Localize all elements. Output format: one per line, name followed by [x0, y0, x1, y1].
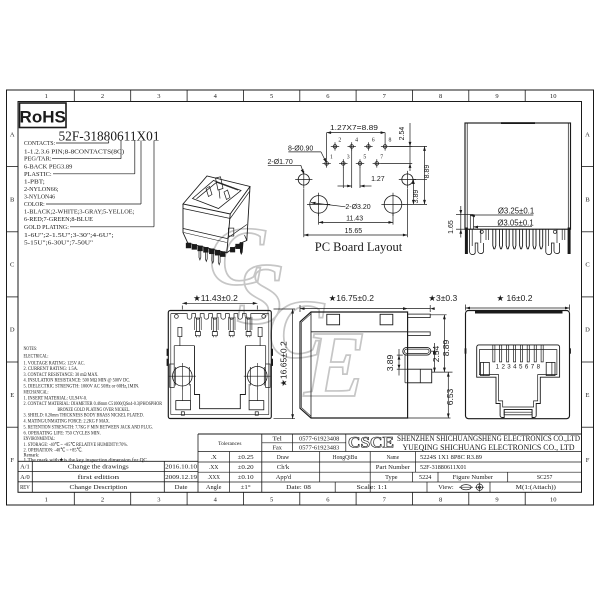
svg-text:.XXX: .XXX: [208, 475, 221, 481]
svg-text:E: E: [10, 392, 14, 399]
svg-text:1: 1: [45, 497, 48, 504]
svg-text:5: 5: [363, 154, 366, 160]
svg-text:±0.10: ±0.10: [238, 475, 254, 481]
svg-text:2.54: 2.54: [399, 127, 406, 141]
svg-text:YUEQING SHICHUANG ELECTRONICS: YUEQING SHICHUANG ELECTRONICS CO., LTD: [403, 443, 575, 452]
svg-text:2: 2: [338, 137, 341, 143]
svg-text:8.89: 8.89: [441, 339, 451, 356]
svg-text:NOTES:: NOTES:: [24, 346, 38, 352]
svg-text:B: B: [585, 196, 590, 203]
svg-text:1-BLACK;2-WHITE;3-GRAY;5-YELLO: 1-BLACK;2-WHITE;3-GRAY;5-YELLOE;: [24, 209, 135, 216]
svg-text:0577-61923483: 0577-61923483: [299, 445, 339, 451]
svg-text:5: 5: [270, 497, 273, 504]
svg-text:PLASTIC:: PLASTIC:: [24, 171, 52, 178]
svg-text:52F-31880611X01: 52F-31880611X01: [420, 465, 467, 471]
svg-text:±0.25: ±0.25: [238, 455, 254, 461]
svg-text:Ø3.05±0.1: Ø3.05±0.1: [497, 218, 533, 227]
svg-text:★11.43±0.2: ★11.43±0.2: [193, 293, 238, 303]
svg-text:4: 4: [355, 137, 358, 143]
svg-text:PEG/TAR:: PEG/TAR:: [24, 156, 52, 163]
svg-text:.X: .X: [211, 455, 218, 461]
svg-text:2009.12.19: 2009.12.19: [165, 475, 197, 481]
svg-text:CSCE: CSCE: [348, 435, 394, 452]
svg-text:5224S 1X1 8P8C R3.89: 5224S 1X1 8P8C R3.89: [420, 455, 482, 461]
svg-text:1 2 3 4 5 6 7 8: 1 2 3 4 5 6 7 8: [496, 363, 541, 370]
svg-text:A/0: A/0: [20, 475, 30, 481]
svg-text:RoHS: RoHS: [20, 108, 66, 127]
svg-text:7: 7: [380, 154, 383, 160]
svg-text:Draw: Draw: [277, 455, 290, 461]
svg-text:1.27: 1.27: [371, 176, 385, 183]
svg-text:HongQiBu: HongQiBu: [333, 455, 358, 461]
svg-text:10: 10: [550, 93, 557, 100]
svg-text:Change the drawings: Change the drawings: [68, 465, 130, 471]
svg-text:ELECTRICAL:: ELECTRICAL:: [24, 354, 49, 360]
svg-text:5224: 5224: [419, 475, 431, 481]
svg-text:F: F: [586, 457, 590, 464]
svg-text:6: 6: [372, 137, 375, 143]
svg-text:C: C: [585, 262, 589, 269]
svg-text:11.43: 11.43: [346, 215, 363, 222]
svg-text:D: D: [10, 327, 15, 334]
svg-text:C: C: [10, 262, 14, 269]
svg-text:1-6U";2-1.5U";3-30";4-6U";: 1-6U";2-1.5U";3-30";4-6U";: [24, 232, 114, 239]
svg-text:A: A: [585, 131, 590, 138]
svg-text:1: 1: [45, 93, 48, 100]
svg-text:0577-61923408: 0577-61923408: [299, 437, 339, 443]
svg-text:View:: View:: [438, 485, 454, 491]
svg-text:D: D: [585, 327, 590, 334]
svg-text:6-RED;7-GREEN;8-BLUE: 6-RED;7-GREEN;8-BLUE: [24, 216, 93, 223]
svg-text:9: 9: [495, 93, 498, 100]
svg-text:1-1.2.3.6 PIN;8-8CONTACTS(8C): 1-1.2.3.6 PIN;8-8CONTACTS(8C): [24, 148, 124, 155]
svg-text:Ø3.25±0.1: Ø3.25±0.1: [498, 206, 534, 215]
svg-text:F: F: [10, 457, 14, 464]
svg-text:±0.20: ±0.20: [238, 465, 254, 471]
svg-text:★16.65±0.2: ★16.65±0.2: [279, 341, 289, 387]
svg-text:1.27X7=8.89: 1.27X7=8.89: [330, 123, 378, 132]
svg-text:Figure Number: Figure Number: [453, 475, 493, 481]
svg-text:10: 10: [550, 497, 557, 504]
svg-text:3.89: 3.89: [385, 354, 395, 371]
svg-text:Angle: Angle: [206, 485, 222, 491]
svg-text:Change Description: Change Description: [70, 485, 128, 491]
svg-text:2: 2: [101, 497, 104, 504]
svg-text:first edition: first edition: [78, 474, 120, 481]
svg-text:★16.75±0.2: ★16.75±0.2: [329, 293, 375, 303]
svg-text:2-Ø1.70: 2-Ø1.70: [268, 159, 293, 166]
svg-text:Date: 08: Date: 08: [286, 485, 311, 491]
svg-text:M(1:(Attach)): M(1:(Attach)): [516, 484, 556, 491]
svg-text:B: B: [10, 196, 15, 203]
svg-text:8: 8: [389, 137, 392, 143]
svg-text:A: A: [10, 131, 15, 138]
svg-text:8: 8: [439, 93, 442, 100]
svg-text:2016.10.10: 2016.10.10: [165, 465, 197, 471]
svg-text:3: 3: [347, 154, 350, 160]
svg-text:E: E: [586, 392, 590, 399]
svg-text:COLOR:: COLOR:: [24, 201, 45, 208]
svg-text:★3±0.3: ★3±0.3: [428, 293, 457, 303]
svg-text:PC Board Layout: PC Board Layout: [315, 240, 403, 254]
svg-text:6-BACK PEG3.89: 6-BACK PEG3.89: [24, 163, 73, 170]
svg-text:8: 8: [439, 497, 442, 504]
svg-text:.XX: .XX: [209, 465, 219, 471]
svg-text:Tolerances: Tolerances: [218, 441, 241, 447]
svg-text:2. CONTACT MATERIAL: DIAMETER: 2. CONTACT MATERIAL: DIAMETER 0.46mm C51…: [24, 400, 163, 407]
svg-text:5: 5: [270, 93, 273, 100]
svg-text:1.The mark with★is the key ins: 1.The mark with★is the key inspection di…: [24, 457, 149, 464]
svg-text:6.53: 6.53: [445, 388, 455, 405]
svg-text:A/1: A/1: [20, 465, 30, 471]
svg-text:1: 1: [330, 154, 333, 160]
svg-text:15.65: 15.65: [345, 228, 363, 235]
svg-text:8-Ø0.90: 8-Ø0.90: [288, 145, 313, 152]
svg-text:2: 2: [101, 93, 104, 100]
svg-text:Scale: 1:1: Scale: 1:1: [357, 485, 388, 491]
svg-text:GOLD PLATING:: GOLD PLATING:: [24, 224, 69, 231]
svg-text:5-15U";6-30U";7-50U": 5-15U";6-30U";7-50U": [24, 240, 93, 247]
svg-text:3: 3: [157, 497, 160, 504]
svg-text:2-NYLON66;: 2-NYLON66;: [24, 186, 59, 193]
svg-text:Date: Date: [175, 485, 188, 491]
svg-text:SC257: SC257: [537, 475, 553, 481]
svg-text:1-PBT;: 1-PBT;: [24, 179, 45, 186]
svg-text:Tel: Tel: [273, 437, 283, 443]
svg-text:★ 16±0.2: ★ 16±0.2: [497, 293, 533, 303]
svg-text:3: 3: [157, 93, 160, 100]
svg-text:Name: Name: [387, 455, 400, 461]
svg-text:SHENZHEN SHICHUANGSHENG ELECTR: SHENZHEN SHICHUANGSHENG ELECTRONICS CO.,…: [397, 434, 580, 443]
svg-text:Type: Type: [385, 475, 398, 481]
svg-text:E: E: [303, 313, 367, 417]
svg-text:9: 9: [495, 497, 498, 504]
svg-text:1.65: 1.65: [448, 220, 455, 234]
svg-text:CONTACTS:: CONTACTS:: [24, 140, 55, 147]
svg-text:Fax: Fax: [273, 445, 282, 451]
svg-text:Part Number: Part Number: [376, 465, 410, 471]
svg-text:±1°: ±1°: [241, 484, 252, 491]
svg-text:App'd: App'd: [276, 475, 292, 481]
svg-text:2-Ø3.20: 2-Ø3.20: [345, 204, 370, 211]
svg-text:REV: REV: [20, 485, 30, 491]
svg-text:8.89: 8.89: [424, 165, 431, 179]
svg-text:3-NYLON46: 3-NYLON46: [24, 194, 56, 201]
svg-text:Ch'k: Ch'k: [277, 465, 289, 471]
